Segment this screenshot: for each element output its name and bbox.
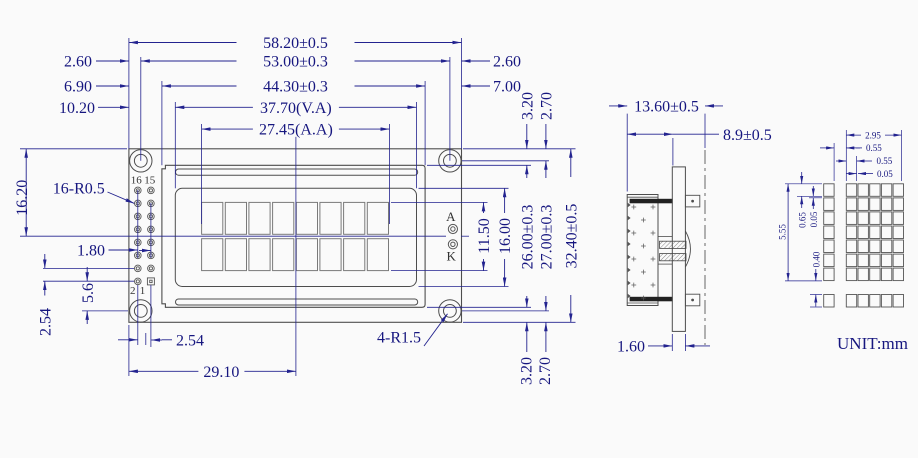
svg-text:13.60±0.5: 13.60±0.5 <box>634 99 699 116</box>
svg-text:5.6: 5.6 <box>80 283 97 303</box>
svg-text:44.30±0.3: 44.30±0.3 <box>263 79 328 96</box>
svg-text:58.20±0.5: 58.20±0.5 <box>263 35 328 52</box>
svg-text:26.00±0.3: 26.00±0.3 <box>519 205 536 270</box>
svg-text:2.54: 2.54 <box>176 333 204 350</box>
svg-text:0.05: 0.05 <box>877 169 893 179</box>
svg-text:3.20: 3.20 <box>519 357 536 385</box>
svg-text:27.45(A.A): 27.45(A.A) <box>259 122 333 139</box>
svg-text:32.40±0.5: 32.40±0.5 <box>563 204 580 269</box>
svg-text:1: 1 <box>140 285 146 297</box>
svg-text:15: 15 <box>144 175 156 187</box>
svg-text:0.65: 0.65 <box>798 212 808 228</box>
svg-text:37.70(V.A): 37.70(V.A) <box>260 100 332 117</box>
svg-text:2.54: 2.54 <box>38 308 55 336</box>
svg-text:29.10: 29.10 <box>203 364 239 381</box>
svg-text:16-R0.5: 16-R0.5 <box>53 181 105 198</box>
svg-text:0.55: 0.55 <box>866 143 882 153</box>
svg-text:3.20: 3.20 <box>519 92 536 120</box>
svg-text:2.70: 2.70 <box>539 92 556 120</box>
svg-text:UNIT:mm: UNIT:mm <box>837 334 908 353</box>
svg-text:7.00: 7.00 <box>493 79 521 96</box>
svg-text:53.00±0.3: 53.00±0.3 <box>263 54 328 71</box>
svg-text:2.60: 2.60 <box>493 54 521 71</box>
svg-text:0.05: 0.05 <box>809 211 819 227</box>
svg-text:1.60: 1.60 <box>617 339 645 356</box>
svg-text:2: 2 <box>130 285 136 297</box>
svg-text:A: A <box>446 209 456 224</box>
svg-text:4-R1.5: 4-R1.5 <box>377 330 421 347</box>
svg-text:6.90: 6.90 <box>64 79 92 96</box>
svg-text:K: K <box>447 249 457 264</box>
svg-text:2.95: 2.95 <box>865 130 881 140</box>
svg-text:1.80: 1.80 <box>77 243 105 260</box>
svg-text:5.55: 5.55 <box>778 224 788 240</box>
svg-text:16: 16 <box>131 175 143 187</box>
svg-text:16.20: 16.20 <box>14 180 31 216</box>
svg-text:16.00: 16.00 <box>497 218 514 254</box>
svg-text:0.55: 0.55 <box>877 156 893 166</box>
svg-text:0.40: 0.40 <box>812 251 822 267</box>
svg-text:8.9±0.5: 8.9±0.5 <box>723 127 772 144</box>
svg-text:2.70: 2.70 <box>537 357 554 385</box>
svg-text:2.60: 2.60 <box>64 54 92 71</box>
svg-text:10.20: 10.20 <box>59 100 95 117</box>
svg-text:27.00±0.3: 27.00±0.3 <box>539 205 556 270</box>
svg-text:11.50: 11.50 <box>476 218 493 253</box>
